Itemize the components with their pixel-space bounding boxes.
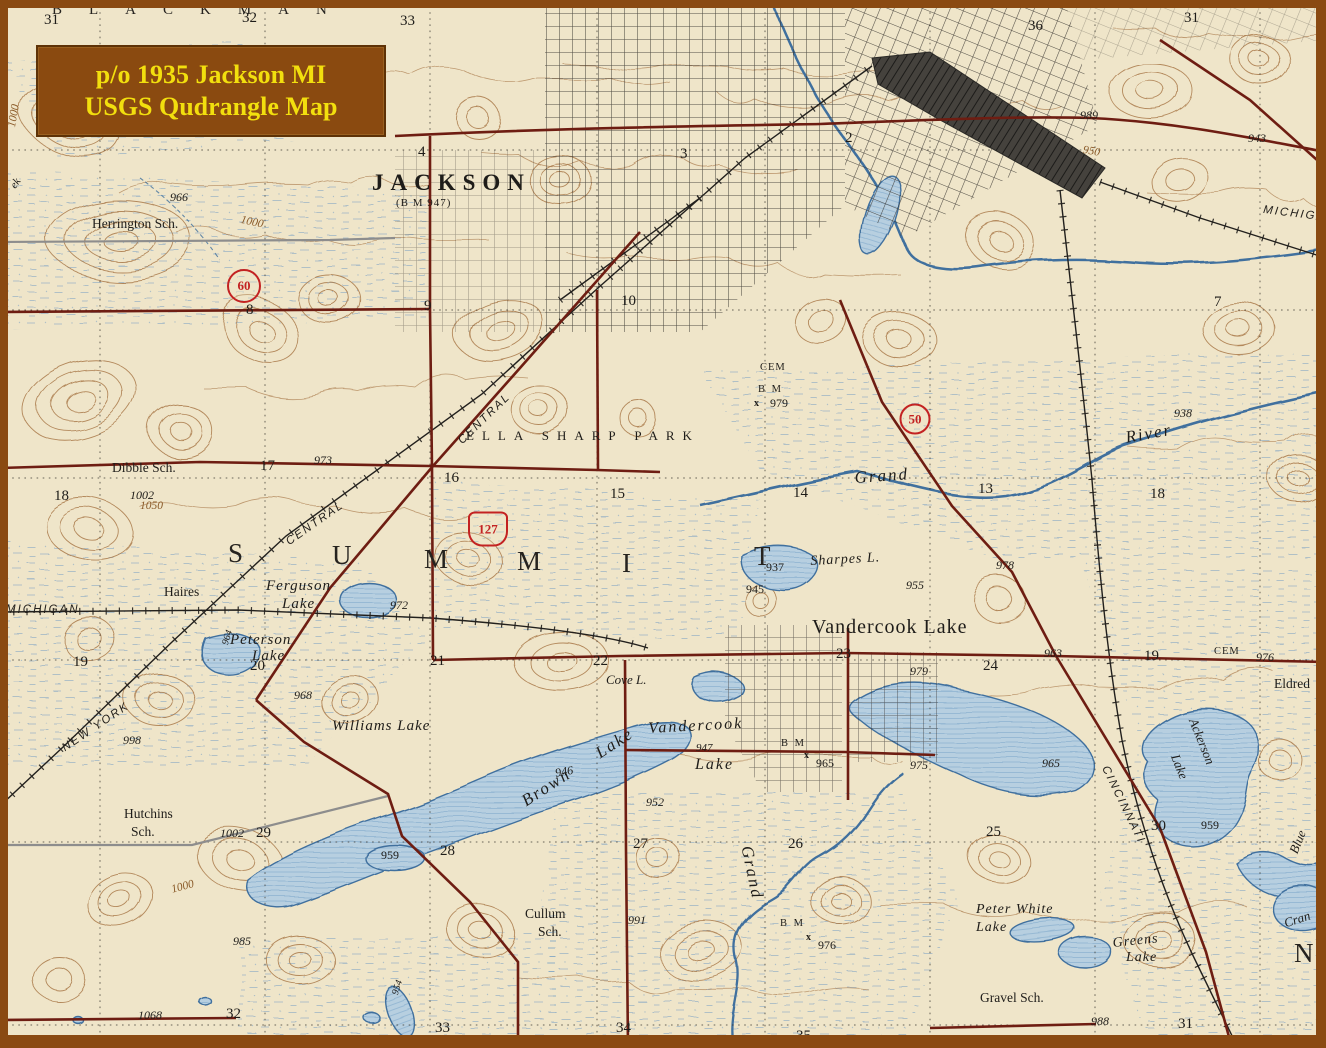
map-label: 963 [1044, 646, 1062, 661]
map-label: 15 [610, 486, 625, 503]
railroad-label-new-york: NEW YORK [60, 700, 132, 754]
lake-label-peter-white: Peter White [976, 902, 1053, 918]
elevation-976-bm: 976 [818, 938, 836, 953]
township-letter-clipped: N [1294, 938, 1314, 969]
railroad-label-michigan-west: MICHIGAN [6, 604, 80, 616]
map-label: 19 [73, 654, 88, 671]
map-label: 966 [170, 190, 188, 205]
map-label: 17 [260, 458, 275, 475]
school-label-cullum: Cullum [525, 906, 566, 922]
benchmark-cross-3: x [806, 932, 811, 943]
benchmark-3: B M [780, 918, 805, 929]
map-label: 8 [246, 302, 254, 319]
elevation-965-bm: 965 [816, 756, 834, 771]
map-label: 954 [390, 979, 405, 997]
map-label: 965 [1042, 756, 1060, 771]
benchmark-jackson: (B M 947) [396, 197, 451, 209]
lake-label-vandercook: Vandercook [648, 715, 744, 738]
title-box: p/o 1935 Jackson MI USGS Qudrangle Map [36, 45, 386, 137]
map-label: 946 [554, 763, 574, 781]
map-label: 24 [983, 658, 998, 675]
map-label: 25 [986, 824, 1001, 841]
lake-label-ackerson: Ackerson [1185, 716, 1218, 767]
route-shield-127: 127 [468, 512, 508, 547]
park-label-ella-sharp-park: ELLA SHARP PARK [466, 428, 700, 444]
township-letter-summit-m2: M [517, 546, 541, 577]
cemetery-label-2: CEM [1214, 646, 1240, 657]
map-label: 950 [1082, 144, 1101, 159]
map-label: 23 [836, 646, 851, 663]
map-label: 20 [250, 658, 265, 675]
map-label: 972 [390, 598, 408, 613]
township-letter-summit-u: U [332, 540, 352, 571]
lake-label-williams: Williams Lake [332, 718, 430, 735]
map-label: 988 [1091, 1014, 1109, 1029]
map-label: 979 [910, 664, 928, 679]
lake-label-brown-2: Lake [592, 724, 637, 763]
map-label: 989 [1080, 108, 1098, 123]
map-label: 959 [381, 848, 399, 863]
lake-label-peter-white-2: Lake [976, 920, 1007, 936]
map-label: 4 [418, 144, 426, 161]
map-label: 976 [1256, 650, 1274, 665]
elevation-979-bm: 979 [770, 396, 788, 411]
benchmark-cross-1: x [754, 398, 759, 409]
map-label: 18 [54, 488, 69, 505]
lake-label-cove: Cove L. [606, 672, 646, 688]
route-shield-60: 60 [227, 269, 261, 303]
benchmark-cross-2: x [804, 750, 809, 761]
map-label: 973 [314, 453, 332, 468]
map-label: 32 [226, 1006, 241, 1023]
river-label-grand-1: Grand [854, 464, 910, 488]
map-label: 938 [1174, 406, 1192, 421]
map-label: 27 [633, 836, 648, 853]
lake-label-ferguson: Ferguson [266, 578, 331, 595]
map-label: 952 [646, 795, 664, 810]
map-label: 1050 [140, 500, 163, 512]
map-label: 943 [1248, 131, 1266, 146]
map-inner: BLACKMANSUMMITNJACKSON(B M 947)Vandercoo… [0, 0, 1326, 1048]
lake-label-ferguson-2: Lake [282, 596, 315, 613]
map-label: 968 [294, 688, 312, 703]
lake-label-blue-fragment: Blue [1286, 828, 1310, 856]
map-label: 31 [44, 12, 59, 29]
benchmark-1: B M [758, 384, 783, 395]
map-label: 1000 [6, 103, 22, 128]
map-label: 34 [616, 1020, 631, 1037]
map-label: 32 [242, 10, 257, 27]
map-label: 29 [256, 825, 271, 842]
station-label-haires: Haires [164, 584, 199, 600]
map-label: 945 [746, 582, 764, 597]
cemetery-label-1: CEM [760, 362, 786, 373]
map-label: 16 [444, 470, 459, 487]
map-label: 36 [1028, 18, 1043, 35]
map-label: 959 [1201, 818, 1219, 833]
map-label: 13 [978, 481, 993, 498]
map-label: 7 [1214, 294, 1222, 311]
title-line-1: p/o 1935 Jackson MI [96, 60, 326, 90]
railroad-label-michigan-east: MICHIGAN [1263, 204, 1326, 225]
lake-label-vandercook-2: Lake [695, 756, 734, 774]
map-label: 955 [906, 578, 924, 593]
lake-label-greens: Greens [1112, 931, 1159, 952]
map-label: 1000 [240, 214, 265, 231]
map-label: 31 [1178, 1016, 1193, 1033]
school-label-dibble: Dibble Sch. [112, 460, 176, 476]
school-label-cullum-2: Sch. [538, 924, 562, 940]
map-label: 978 [996, 558, 1014, 573]
map-label: 937 [766, 560, 784, 575]
town-label-vandercook-lake: Vandercook Lake [812, 616, 968, 639]
place-label-eldred: Eldred [1274, 676, 1310, 692]
township-label-blackman: BLACKMAN [52, 2, 354, 19]
map-label: 991 [628, 913, 646, 928]
map-label: 30 [1151, 818, 1166, 835]
lake-label-cran-fragment: Cran [1282, 908, 1312, 931]
map-label: 22 [593, 653, 608, 670]
city-label-jackson: JACKSON [372, 170, 531, 196]
river-label-grand-2: Grand [736, 844, 767, 901]
benchmark-2: B M [781, 738, 806, 749]
map-frame: BLACKMANSUMMITNJACKSON(B M 947)Vandercoo… [0, 0, 1326, 1048]
map-label: 26 [788, 836, 803, 853]
township-letter-summit-m1: M [424, 544, 448, 575]
map-label: 998 [123, 733, 141, 748]
creek-label-fragment: ek [8, 176, 23, 191]
railroad-label-cincinnati: CINCINNATI [1099, 764, 1147, 846]
map-label: 9 [424, 298, 432, 315]
map-label: 1068 [138, 1008, 162, 1023]
school-label-gravel: Gravel Sch. [980, 990, 1044, 1006]
school-label-hutchins: Hutchins [124, 806, 173, 822]
map-label: 33 [400, 13, 415, 30]
map-label: 10 [621, 293, 636, 310]
map-label: 2 [845, 130, 853, 147]
map-label: 14 [793, 485, 808, 502]
school-label-hutchins-2: Sch. [131, 824, 155, 840]
map-label: 33 [435, 1020, 450, 1037]
map-label: 31 [1184, 10, 1199, 27]
map-label: 28 [440, 843, 455, 860]
map-label: 21 [430, 653, 445, 670]
elevation-947: 947 [696, 742, 713, 754]
map-label: 1002 [220, 826, 244, 841]
map-label: 19 [1144, 648, 1159, 665]
township-letter-summit-i: I [622, 548, 631, 579]
map-label: 18 [1150, 486, 1165, 503]
lake-label-greens-2: Lake [1126, 950, 1157, 966]
lake-label-ackerson-2: Lake [1167, 752, 1191, 781]
river-label-river: River [1124, 420, 1174, 448]
map-label-layer: BLACKMANSUMMITNJACKSON(B M 947)Vandercoo… [0, 0, 1326, 1048]
map-label: 35 [796, 1028, 811, 1045]
map-label: 975 [910, 758, 928, 773]
lake-label-sharpes: Sharpes L. [810, 550, 881, 570]
lake-label-peterson: Peterson [230, 632, 291, 649]
map-label: 1000 [170, 878, 195, 896]
route-shield-50: 50 [900, 404, 931, 435]
title-line-2: USGS Qudrangle Map [85, 92, 338, 122]
map-label: 3 [680, 146, 688, 163]
school-label-herrington: Herrington Sch. [92, 216, 178, 232]
township-letter-summit-s: S [228, 538, 243, 569]
map-label: 985 [233, 934, 251, 949]
